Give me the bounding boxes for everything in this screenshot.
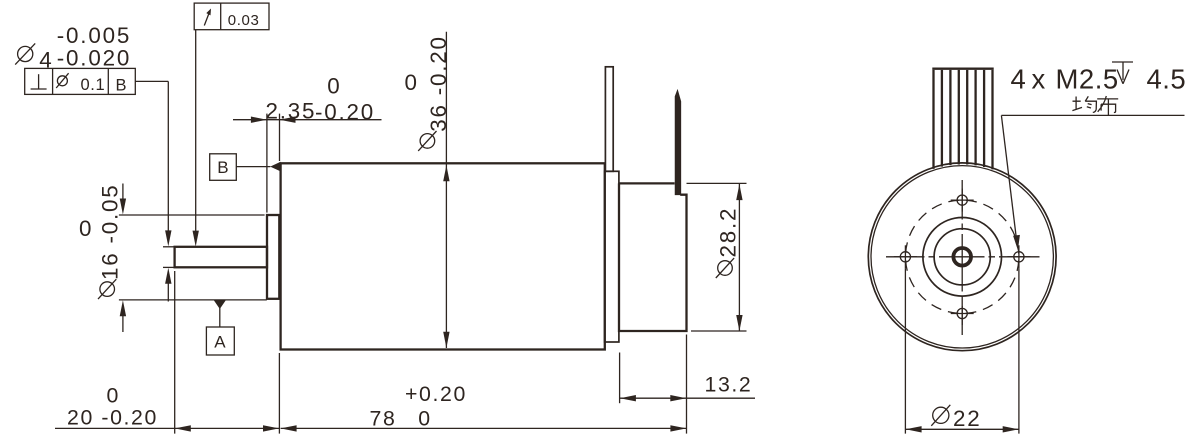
svg-text:2.35: 2.35 bbox=[266, 98, 317, 123]
svg-text:4: 4 bbox=[1011, 63, 1027, 94]
svg-text:28.2: 28.2 bbox=[716, 207, 741, 258]
svg-text:-0.20: -0.20 bbox=[315, 99, 375, 124]
svg-text:78: 78 bbox=[370, 406, 397, 430]
svg-text:0.1: 0.1 bbox=[81, 76, 106, 94]
svg-text:x: x bbox=[1032, 63, 1046, 94]
svg-text:0: 0 bbox=[405, 70, 419, 95]
svg-text:-0.020: -0.020 bbox=[57, 46, 131, 71]
svg-text:36 -0.20: 36 -0.20 bbox=[426, 35, 451, 132]
svg-text:A: A bbox=[214, 333, 226, 352]
svg-text:0: 0 bbox=[327, 74, 341, 99]
svg-text:4.5: 4.5 bbox=[1147, 63, 1187, 94]
svg-text:B: B bbox=[217, 158, 228, 177]
svg-text:B: B bbox=[116, 77, 128, 95]
svg-text:0.03: 0.03 bbox=[228, 12, 260, 29]
svg-text:0: 0 bbox=[79, 216, 93, 241]
svg-text:+0.20: +0.20 bbox=[405, 382, 467, 406]
svg-text:16 -0.05: 16 -0.05 bbox=[98, 183, 123, 280]
svg-text:M2.5: M2.5 bbox=[1056, 63, 1119, 94]
svg-text:0: 0 bbox=[107, 384, 120, 408]
svg-text:20 -0.20: 20 -0.20 bbox=[67, 405, 158, 429]
svg-text:13.2: 13.2 bbox=[705, 372, 753, 396]
svg-text:0: 0 bbox=[418, 406, 431, 430]
svg-text:22: 22 bbox=[953, 406, 982, 431]
svg-text:-0.005: -0.005 bbox=[57, 23, 131, 48]
